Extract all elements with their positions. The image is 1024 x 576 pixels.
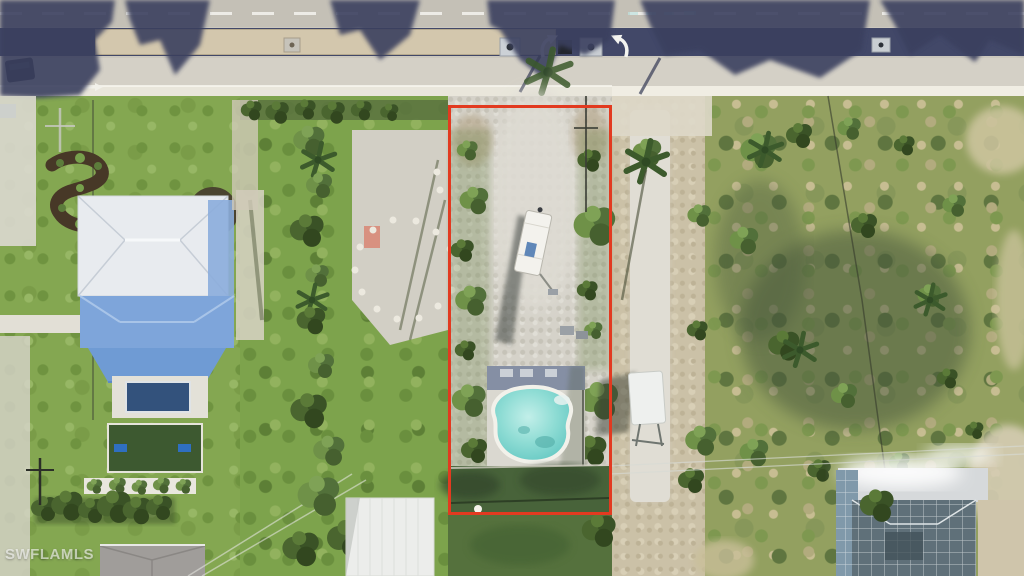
white-roof-section — [78, 196, 228, 296]
entry-walk — [0, 315, 80, 333]
aerial-photo: SWFLAMLS — [0, 0, 1024, 576]
u-turn-arrow-icon — [607, 33, 630, 58]
left-walkway — [0, 96, 36, 246]
lounger — [114, 444, 127, 452]
courtyard-pool — [126, 382, 190, 412]
sandy-clearing — [978, 500, 1024, 576]
watermark: SWFLAMLS — [5, 546, 94, 563]
lot-boundary-highlight — [448, 105, 612, 515]
blue-roof-house — [78, 190, 264, 495]
boat-trailer — [628, 371, 666, 425]
lounger — [178, 444, 191, 452]
sandy-patch — [966, 106, 1024, 174]
gray-roof-house — [100, 545, 205, 576]
screened-pool-house — [610, 445, 1024, 576]
white-roof-building — [346, 498, 434, 576]
